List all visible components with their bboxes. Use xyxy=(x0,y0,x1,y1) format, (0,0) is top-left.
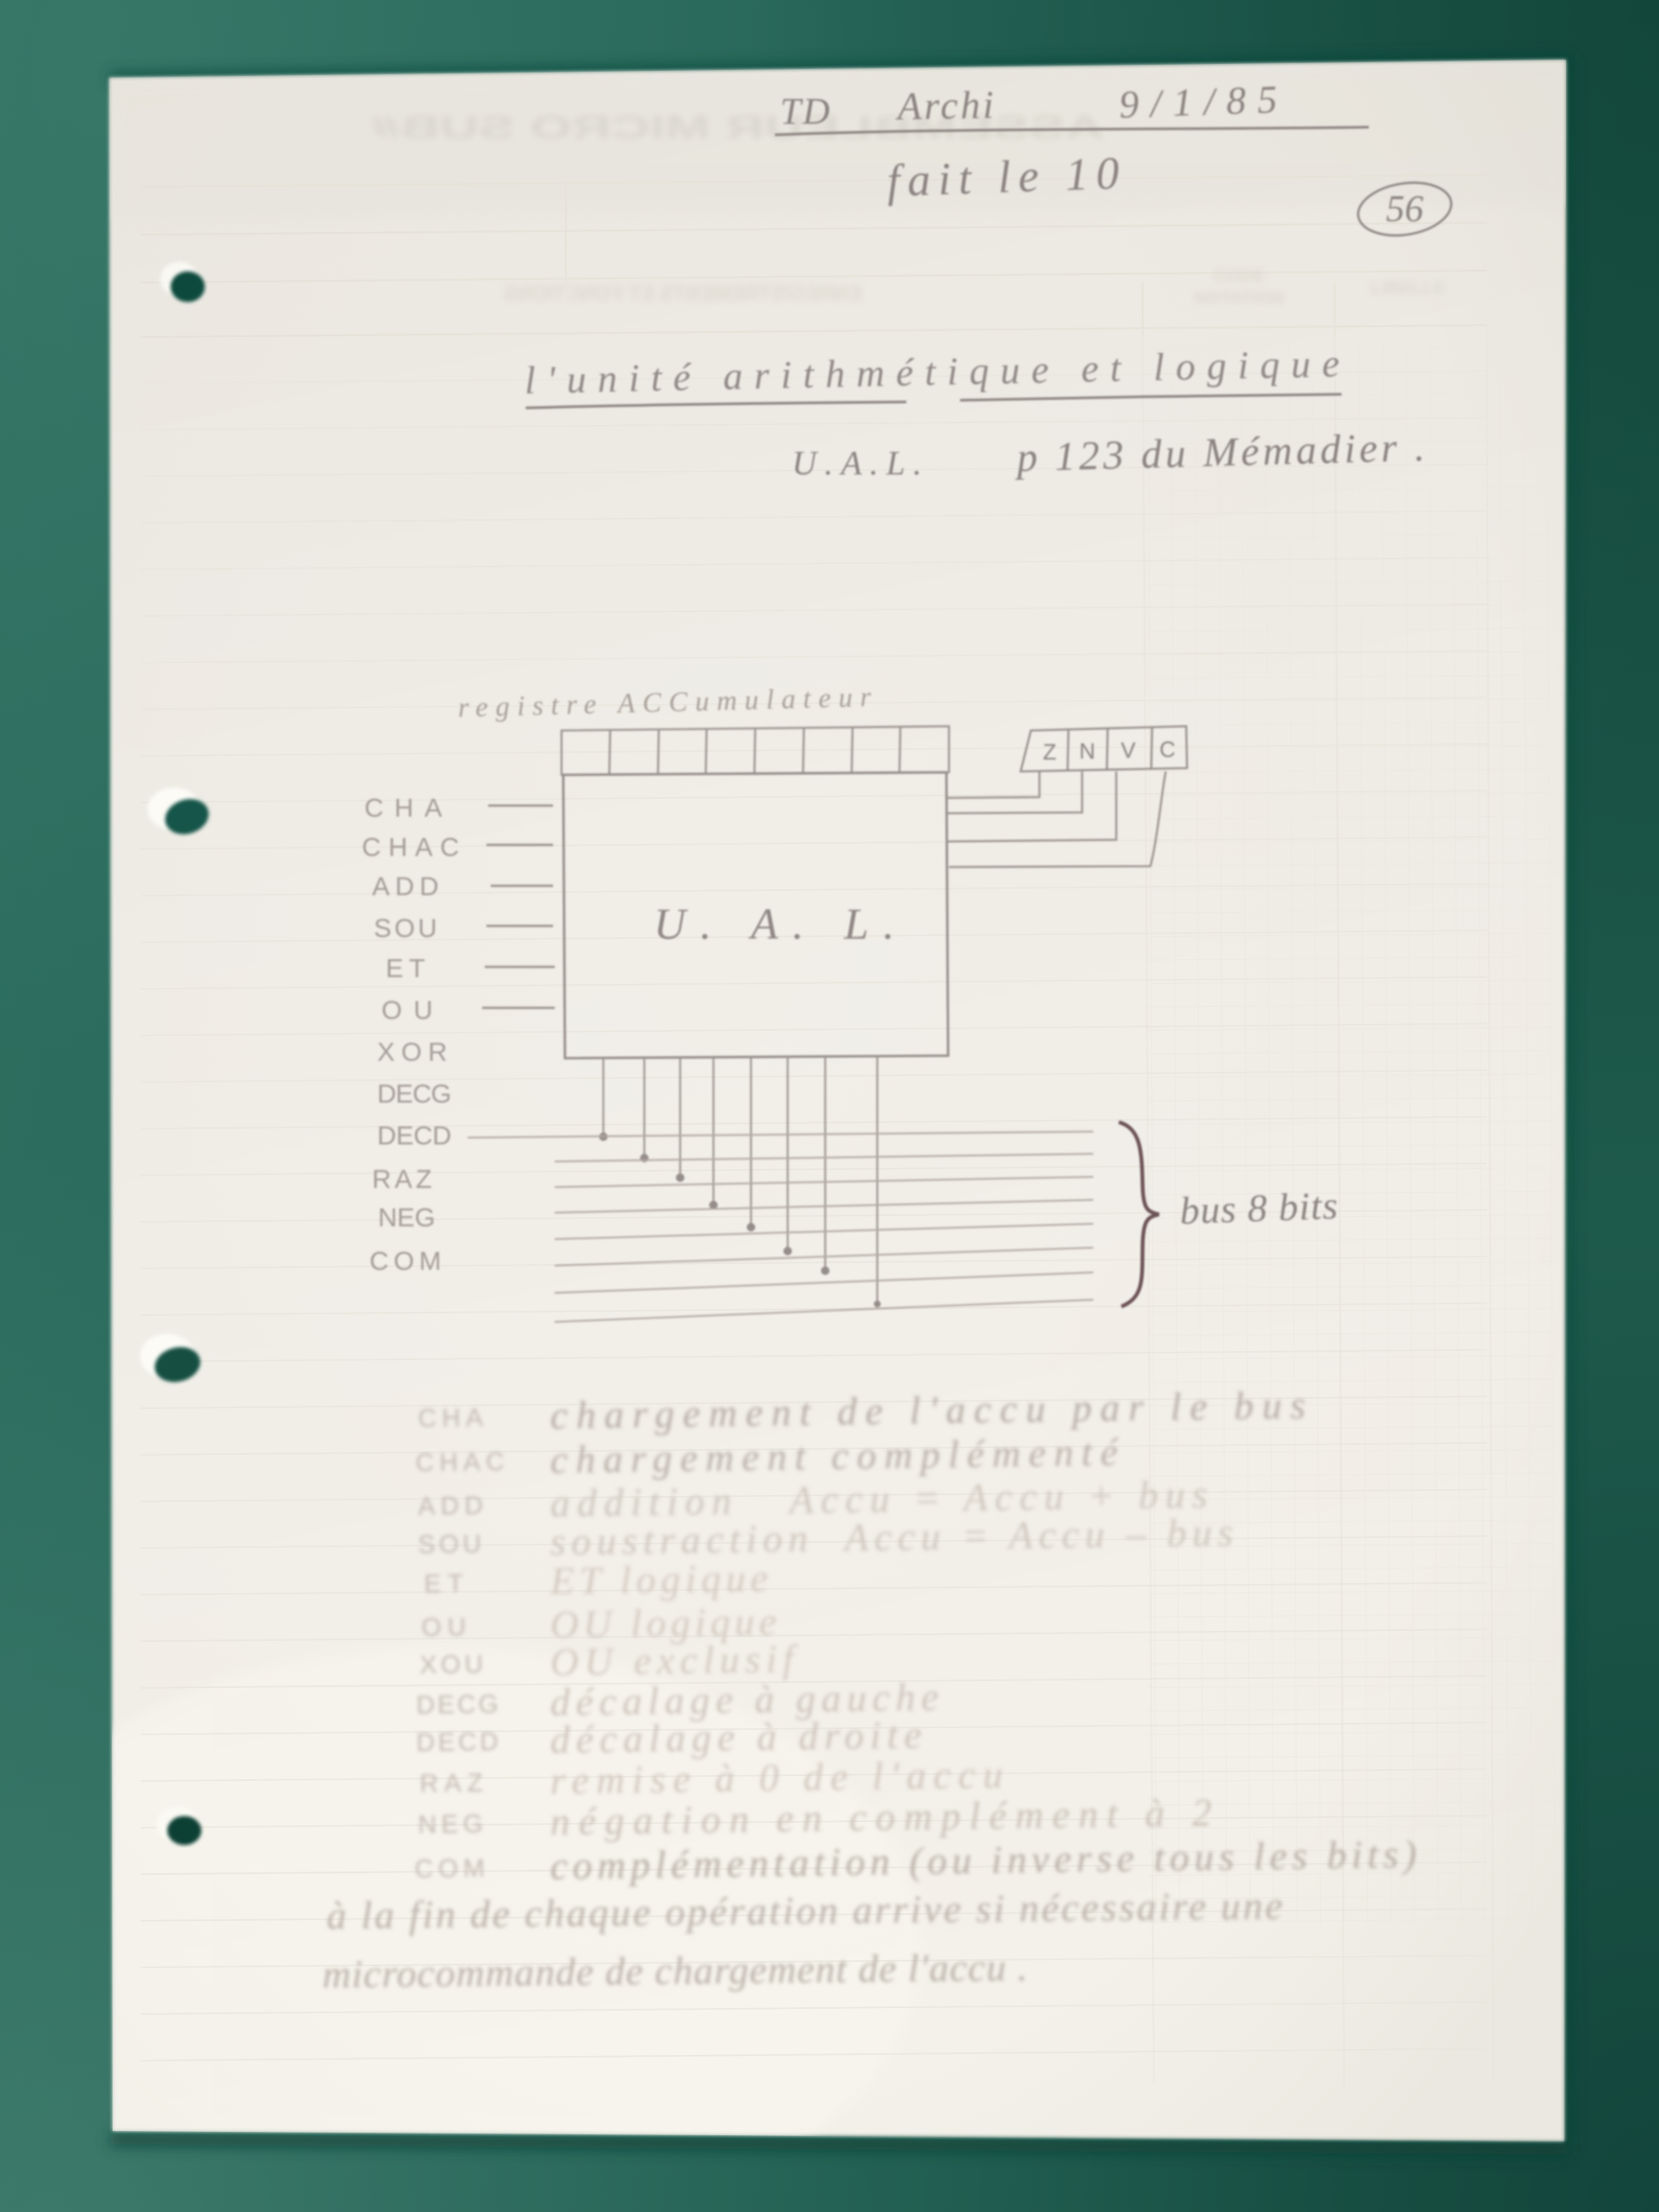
svg-text:CHA: CHA xyxy=(418,1404,486,1433)
svg-text:DECD: DECD xyxy=(416,1728,502,1757)
svg-text:Archi: Archi xyxy=(894,83,996,128)
svg-text:RAZ: RAZ xyxy=(372,1164,437,1194)
svg-text:U.A.L.: U.A.L. xyxy=(792,444,922,482)
svg-text:négation en complément à 2: négation en complément à 2 xyxy=(550,1790,1212,1843)
svg-text:COM: COM xyxy=(370,1246,446,1276)
svg-text:chargement complémenté: chargement complémenté xyxy=(550,1430,1120,1481)
svg-text:V: V xyxy=(1121,737,1136,763)
svg-text:DECG: DECG xyxy=(377,1079,457,1109)
svg-text:ADD: ADD xyxy=(372,871,444,901)
svg-text:ET: ET xyxy=(386,953,430,983)
svg-text:C: C xyxy=(1160,736,1176,762)
svg-text:LIBELLE: LIBELLE xyxy=(1371,278,1446,298)
svg-text:Z: Z xyxy=(1043,739,1057,765)
svg-text:COM: COM xyxy=(415,1854,488,1883)
svg-text:DECD: DECD xyxy=(377,1121,457,1150)
svg-text:DECG: DECG xyxy=(416,1691,502,1720)
svg-text:RAZ: RAZ xyxy=(420,1769,486,1798)
svg-text:CODE: CODE xyxy=(1214,266,1266,286)
svg-text:remise à 0 de l'accu: remise à 0 de l'accu xyxy=(550,1753,1003,1802)
svg-text:bus 8 bits: bus 8 bits xyxy=(1179,1184,1339,1232)
svg-text:fait le 10: fait le 10 xyxy=(886,148,1120,207)
svg-text:NEG: NEG xyxy=(378,1202,440,1232)
svg-text:ENREGISTREMENTS ET FONCTIONS: ENREGISTREMENTS ET FONCTIONS xyxy=(504,282,862,306)
svg-text:NOTATION: NOTATION xyxy=(1194,288,1285,308)
svg-text:N: N xyxy=(1080,738,1096,764)
svg-text:XOU: XOU xyxy=(420,1650,486,1679)
svg-text:ADD: ADD xyxy=(418,1492,486,1521)
svg-text:XOR: XOR xyxy=(377,1037,452,1067)
svg-text:microcommande de chargement de: microcommande de chargement de l'accu . xyxy=(323,1945,1027,1996)
svg-text:SOU: SOU xyxy=(374,913,442,943)
svg-text:NEG: NEG xyxy=(418,1810,486,1839)
svg-text:SOU: SOU xyxy=(418,1530,485,1559)
svg-text:56: 56 xyxy=(1386,188,1423,230)
svg-text:CHA: CHA xyxy=(364,793,447,823)
svg-text:TD: TD xyxy=(780,90,831,132)
